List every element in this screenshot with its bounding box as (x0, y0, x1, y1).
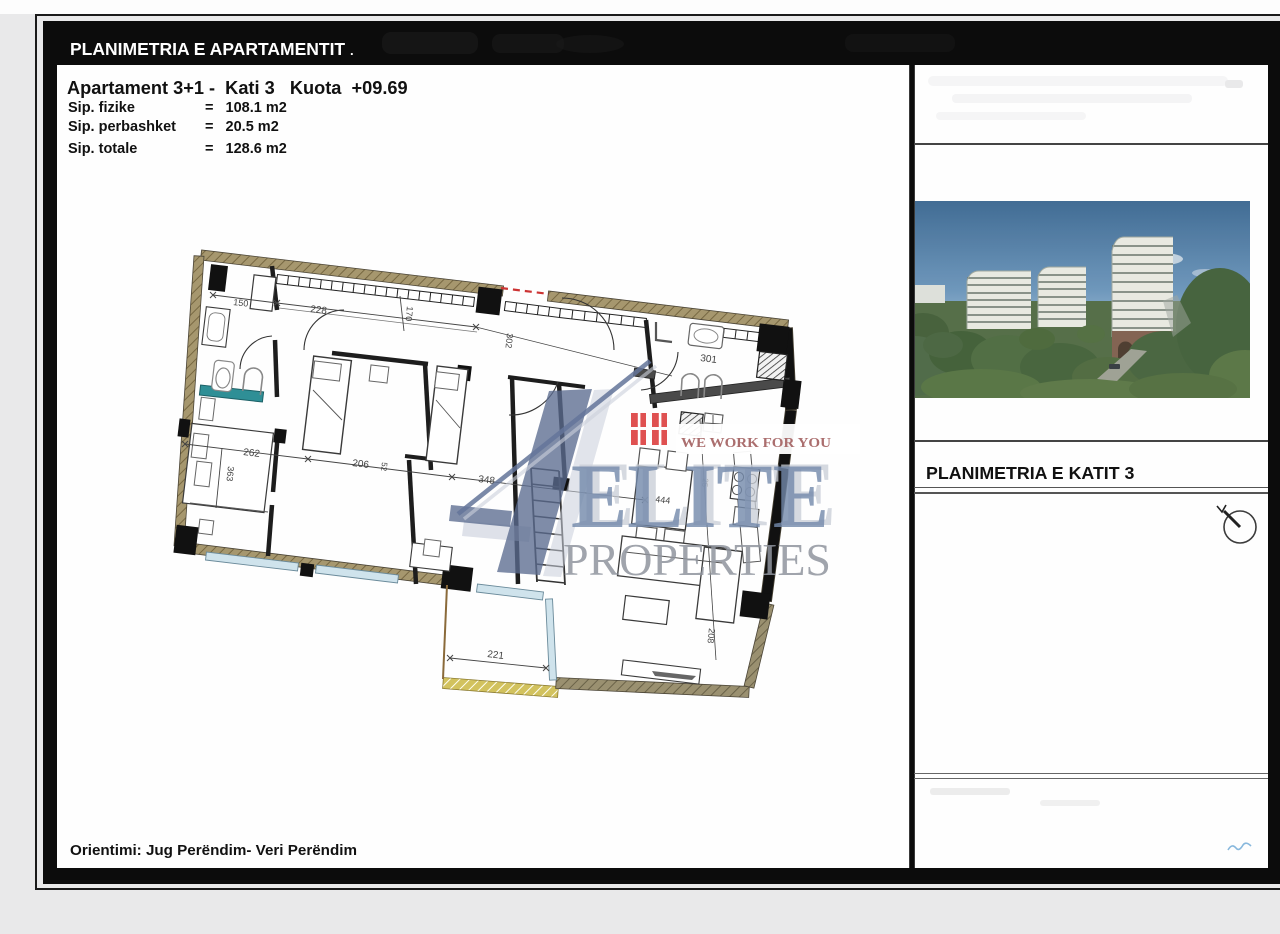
svg-text:301: 301 (700, 353, 718, 366)
svg-text:ELITE: ELITE (571, 445, 829, 547)
svg-text:221: 221 (487, 649, 505, 662)
svg-text:302: 302 (503, 333, 515, 349)
svg-text:228: 228 (310, 304, 328, 317)
svg-text:206: 206 (352, 458, 370, 471)
svg-text:PROPERTIES: PROPERTIES (563, 534, 831, 585)
svg-text:170: 170 (403, 306, 415, 322)
svg-text:150: 150 (233, 297, 249, 309)
svg-text:52: 52 (379, 462, 389, 472)
svg-text:363: 363 (224, 466, 236, 482)
svg-text:208: 208 (705, 628, 717, 644)
svg-text:262: 262 (243, 447, 261, 460)
